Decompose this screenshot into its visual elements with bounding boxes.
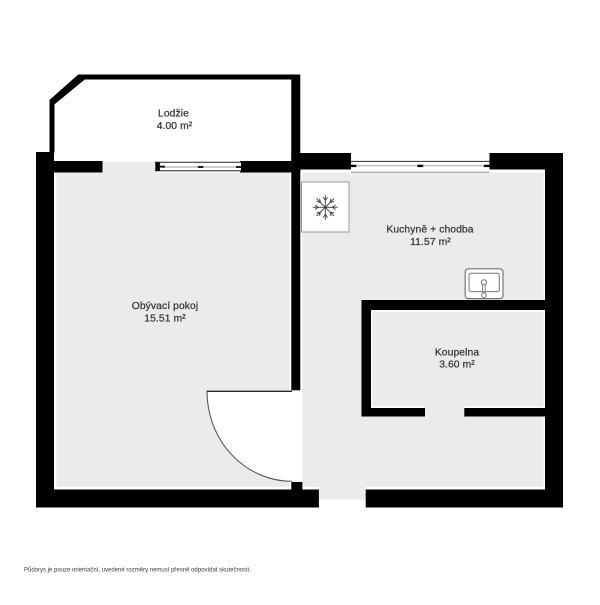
svg-text:15.51 m²: 15.51 m² bbox=[144, 314, 186, 325]
svg-text:Obývací pokoj: Obývací pokoj bbox=[132, 301, 199, 312]
svg-text:Půdorys je pouze orientační, u: Půdorys je pouze orientační, uvedené roz… bbox=[24, 567, 251, 574]
svg-text:Kuchyně + chodba: Kuchyně + chodba bbox=[386, 225, 473, 236]
svg-text:11.57 m²: 11.57 m² bbox=[410, 237, 451, 248]
svg-text:Lodžie: Lodžie bbox=[158, 109, 189, 120]
svg-text:4.00 m²: 4.00 m² bbox=[157, 121, 193, 132]
svg-text:3.60 m²: 3.60 m² bbox=[439, 360, 475, 371]
svg-text:Koupelna: Koupelna bbox=[435, 348, 479, 359]
